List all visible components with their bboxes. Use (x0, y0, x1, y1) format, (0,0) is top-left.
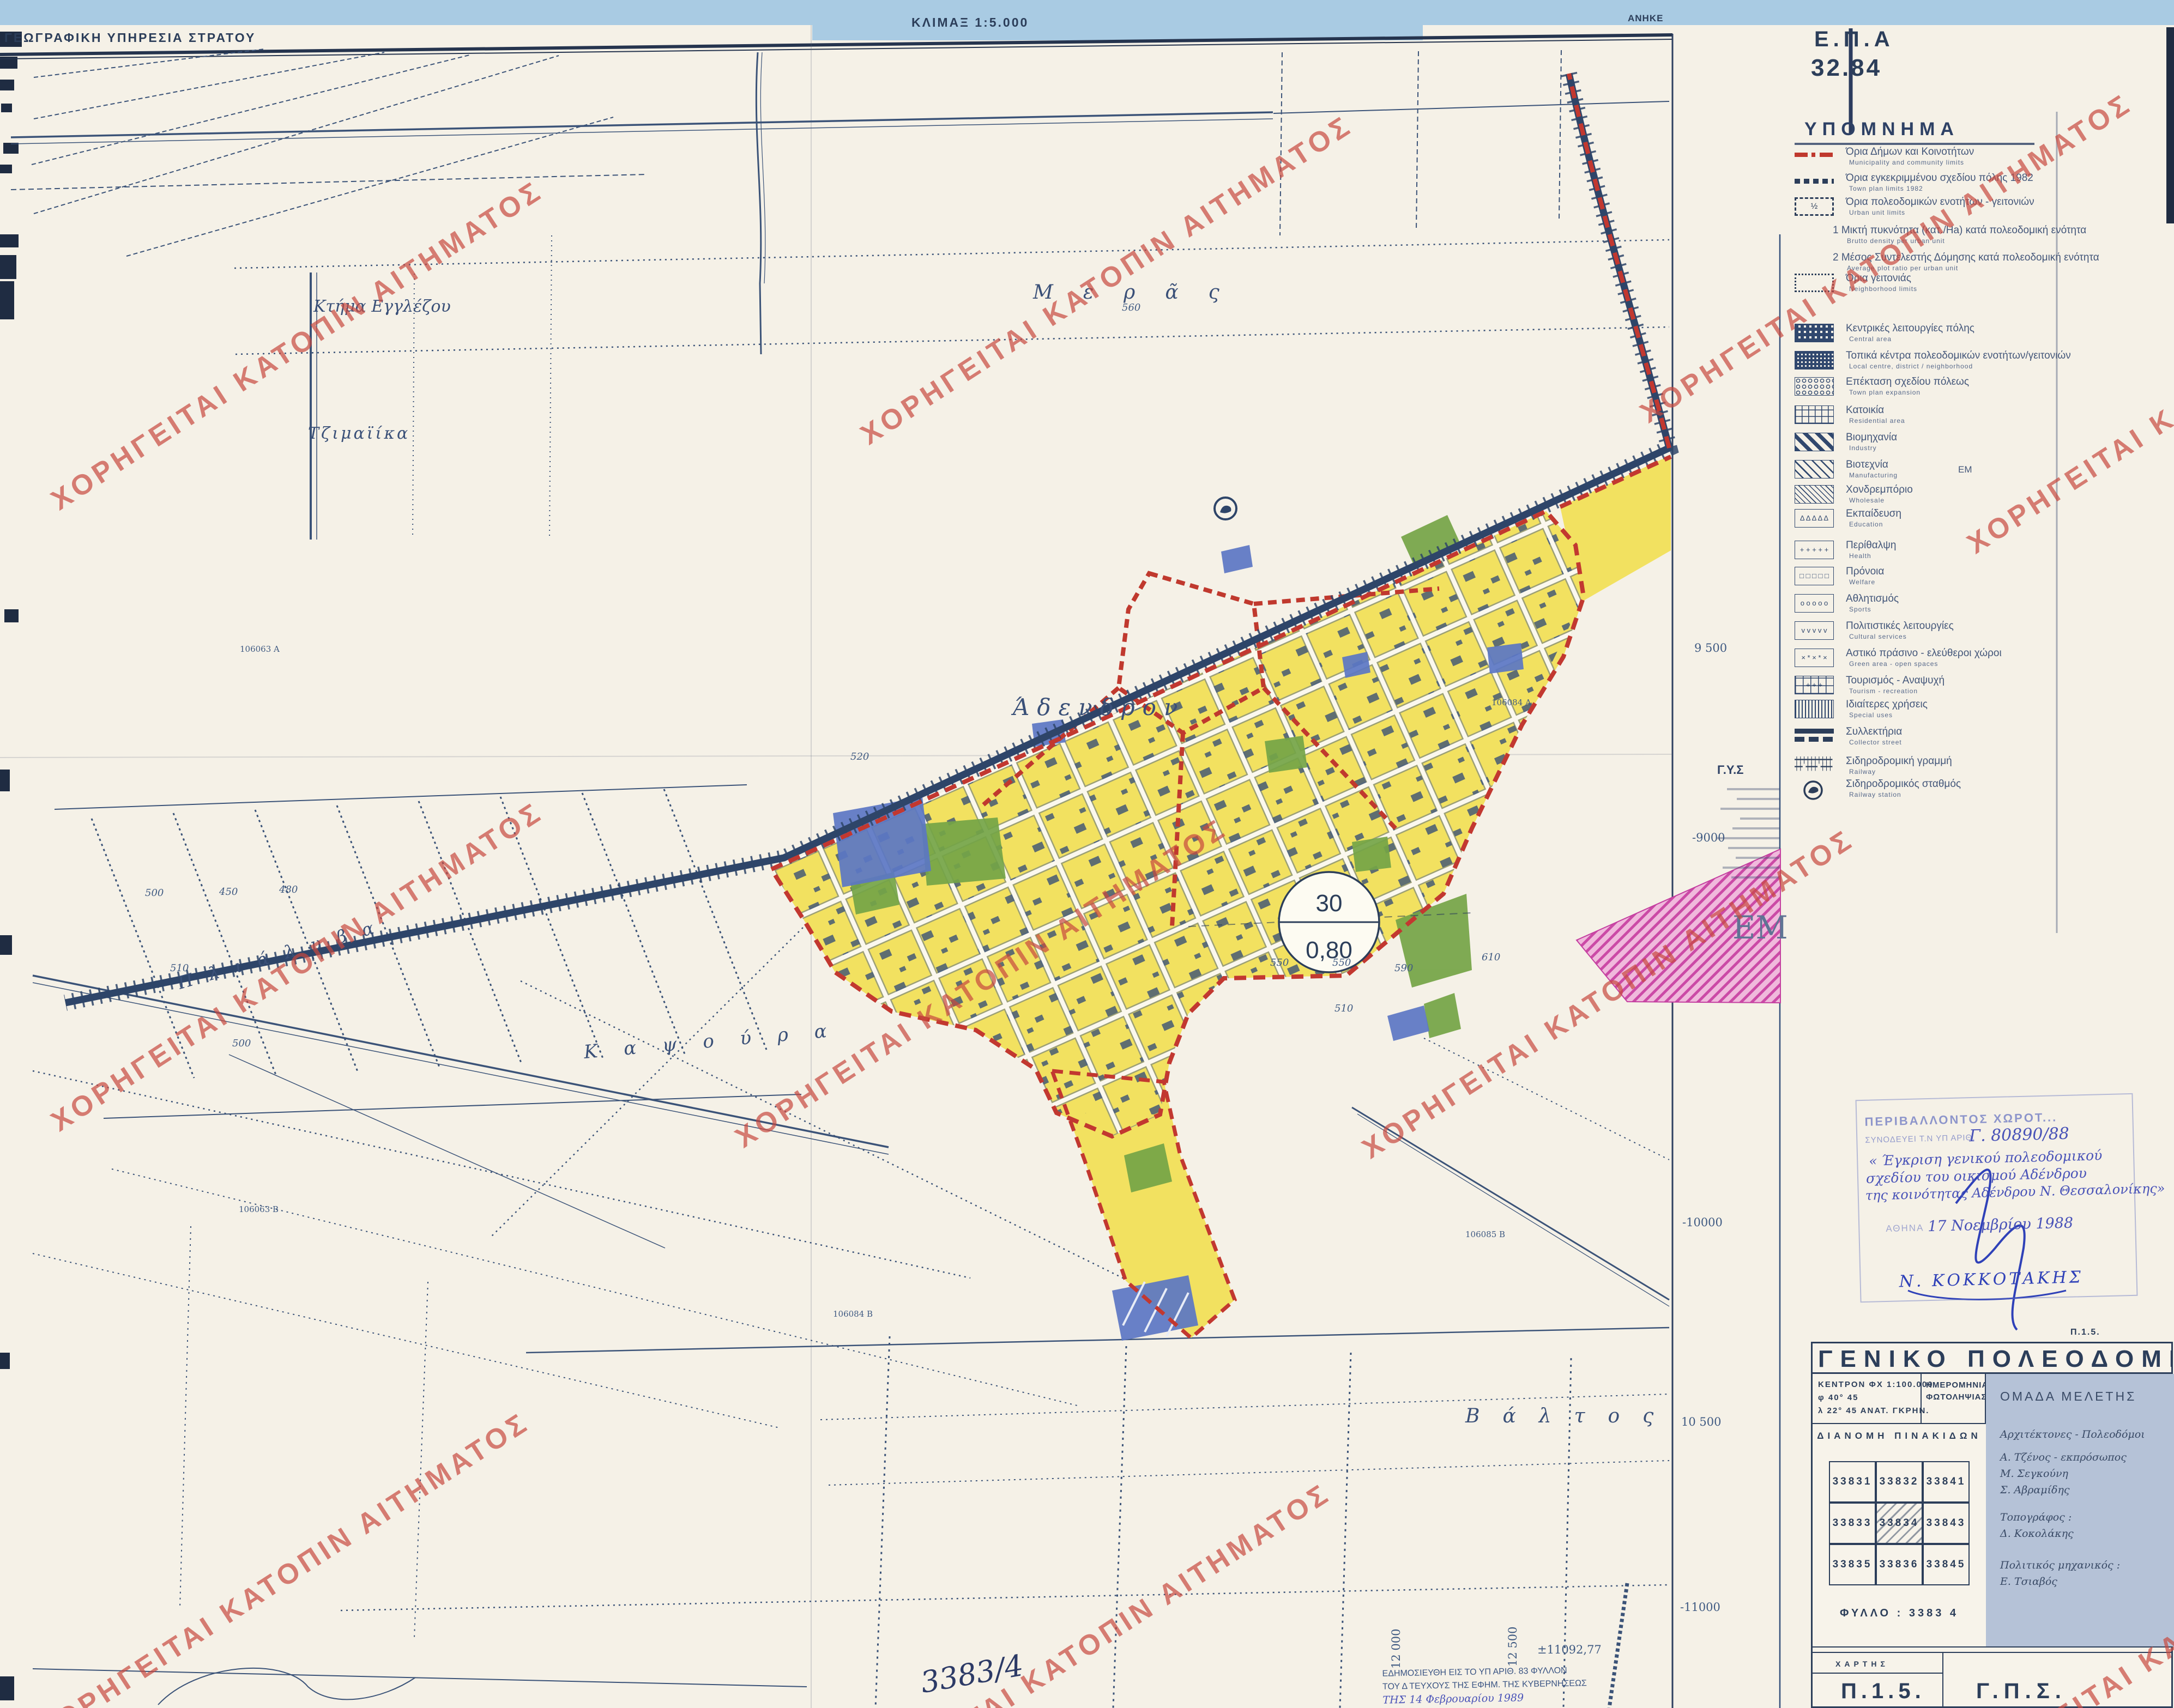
margin-number: 12 000 (1390, 1629, 1403, 1669)
legend-item-collector-street: Συλλεκτήρια Collector street (1795, 726, 2154, 751)
current-sheet-label: ΦΥΛΛΟ : 3383 4 (1813, 1607, 1986, 1620)
belongs-note: ΑΝΗΚΕ (1628, 13, 1663, 24)
legend-item-central-area: Κεντρικές λειτουργίες πόλης Central area (1795, 323, 2154, 348)
legend-rule (1795, 143, 2034, 145)
label-em: ΕΜ (1732, 909, 1788, 946)
legend-item-health: + + + + + Περίθαλψη Health (1795, 540, 2154, 565)
legend-item-town-plan-1982: Όρια εγκεκριμμένου σχεδίου πόλης 1982 To… (1795, 172, 2154, 197)
spot-number: 550 (1270, 957, 1289, 968)
urban-unit-swatch: ½ (1795, 197, 1834, 216)
legend-item-wholesale: Χονδρεμπόριο Wholesale (1795, 484, 2154, 509)
legend-item-cultural: v v v v v Πολιτιστικές λειτουργίες Cultu… (1795, 620, 2154, 645)
legend-item-tourism: + + + Τουρισμός - Αναψυχή Tourism - recr… (1795, 675, 2154, 700)
education-swatch: Δ Δ Δ Δ Δ (1795, 509, 1834, 528)
label-adendron: Άδενδρον (1011, 694, 1185, 720)
margin-number: 10 500 (1681, 1415, 1721, 1428)
team-title: ΟΜΑΔΑ ΜΕΛΕΤΗΣ (2000, 1389, 2136, 1404)
legend-item-green-area: × * × * × Αστικό πράσινο - ελεύθεροι χώρ… (1795, 647, 2154, 673)
label-ktima-englezou: Κτήμα Εγγλέζου (313, 297, 451, 316)
spot-number: 450 (219, 886, 238, 898)
legend-item-local-centre: Τοπικά κέντρα πολεοδομικών ενοτήτων/γειτ… (1795, 350, 2154, 375)
margin-number: ±11092,77 (1537, 1643, 1602, 1656)
legend-item-urban-unit-limits: ½ Όρια πολεοδομικών ενοτήτων - γειτονιών… (1795, 196, 2154, 221)
stamp-ref-label: ΣΥΝΟΔΕΥΕΙ Τ.Ν ΥΠ ΑΡΙΘ. (1865, 1133, 1976, 1145)
legend-item-railway: ┿┿┿┿┿┿┿┿┿┿ ┿┿ ┿┿┿ ┿┿┿ Σιδηροδρομική γραμ… (1795, 755, 2154, 780)
collector-street-swatch (1795, 727, 1834, 746)
sheet-cell: 33843 (1923, 1503, 1970, 1544)
em-note: EM (1958, 464, 1972, 475)
sheet-cell: 33845 (1923, 1544, 1970, 1585)
special-uses-swatch (1795, 700, 1834, 718)
urban-wedge (1560, 455, 1671, 602)
center-coords-cell: ΚΕΝΤΡΟΝ ΦΧ 1:100.000 φ 40° 45 λ 22° 45 Α… (1813, 1374, 1922, 1424)
industry-swatch (1795, 433, 1834, 451)
sheet-cell: 33841 (1923, 1461, 1970, 1503)
railway-station-symbol (1215, 498, 1236, 519)
sheet-cell-active: 33834 (1876, 1503, 1923, 1544)
legend-item-railway-station: Σιδηροδρομικός σταθμός Railway station (1795, 778, 2154, 803)
spot-number: 560 (1122, 302, 1140, 313)
municipality-limit-swatch (1795, 153, 1834, 157)
stamp-date: 17 Νοεμβρίου 1988 (1928, 1215, 2074, 1235)
welfare-swatch: □ □ □ □ □ (1795, 567, 1834, 585)
spot-number: 610 (1482, 952, 1500, 963)
geo-point-label: 106063 A (240, 644, 280, 654)
manufacturing-swatch (1795, 460, 1834, 479)
spot-number: 480 (279, 884, 298, 895)
central-area-swatch (1795, 324, 1834, 342)
label-tzimaiika: Τζιμαϊίκα (308, 424, 410, 443)
green-area-swatch: × * × * × (1795, 649, 1834, 667)
sheet-index-title: ΔΙΑΝΟΜΗ ΠΙΝΑΚΙΔΩΝ (1813, 1431, 1986, 1441)
legend-item-town-plan-expansion: Επέκταση σχεδίου πόλεως Town plan expans… (1795, 376, 2154, 401)
density-value: 30 (1316, 890, 1343, 917)
stamp-place: ΑΘΗΝΑ (1886, 1222, 1924, 1234)
legend-item-industry: Βιομηχανία Industry (1795, 432, 2154, 457)
expansion-swatch (1795, 377, 1834, 396)
geo-point-label: 106084 B (833, 1309, 873, 1319)
spot-number: 550 (1332, 957, 1351, 968)
spot-number: 510 (170, 962, 189, 974)
spot-number: 520 (850, 751, 869, 762)
legend-title: ΥΠΟΜΝΗΜΑ (1804, 119, 1959, 140)
spot-number: 590 (1394, 962, 1413, 974)
spot-number: 510 (1334, 1003, 1353, 1014)
legend-item-residential: Κατοικία Residential area (1795, 404, 2154, 429)
railway-station-icon (1795, 779, 1834, 798)
spot-number: 500 (145, 887, 164, 899)
legend-item-welfare: □ □ □ □ □ Πρόνοια Welfare (1795, 566, 2154, 591)
margin-number: -10000 (1682, 1216, 1723, 1229)
wholesale-swatch (1795, 485, 1834, 504)
sheet-cell: 33835 (1829, 1544, 1876, 1585)
study-team-panel: ΟΜΑΔΑ ΜΕΛΕΤΗΣ Αρχιτέκτονες - Πολεοδόμοι … (1986, 1374, 2174, 1646)
epa-code: Ε.Π.Α (1814, 27, 1894, 52)
legend-item-density: 1 Μικτή πυκνότητα (κατ./Ha) κατά πολεοδο… (1795, 225, 2154, 250)
margin-number: -11000 (1680, 1601, 1720, 1614)
agency-title: ΓΕΩΓΡΑΦΙΚΗ ΥΠΗΡΕΣΙΑ ΣΤΡΑΤΟΥ (4, 31, 256, 45)
publication-note: ΕΔΗΜΟΣΙΕΥΘΗ ΕΙΣ ΤΟ ΥΠ ΑΡΙΘ. 83 ΦΥΛΛΟΝ ΤΟ… (1382, 1663, 1617, 1706)
margin-number: 9 500 (1694, 641, 1727, 655)
neighborhood-limit-swatch (1795, 274, 1834, 292)
label-kapsoura: Καψούρα (582, 1018, 854, 1063)
margin-number: 12 500 (1506, 1627, 1519, 1667)
plan-title: ΓΕΝΙΚΟ ΠΟΛΕΟΔΟΜΙΚΟ ΣΧΕΔΙΟ (1813, 1343, 2171, 1374)
railway-swatch: ┿┿┿┿┿┿┿┿┿┿ ┿┿ ┿┿┿ ┿┿┿ (1795, 756, 1834, 775)
legend-item-special-uses: Ιδιαίτερες χρήσεις Special uses (1795, 699, 2154, 724)
sheet-cell: 33836 (1876, 1544, 1923, 1585)
approval-stamp: ΠΕΡΙΒΑΛΛΟΝΤΟΣ ΧΩΡΟΤ... ΣΥΝΟΔΕΥΕΙ Τ.Ν ΥΠ … (1856, 1093, 2138, 1303)
cultural-swatch: v v v v v (1795, 621, 1834, 640)
title-block: ΓΕΝΙΚΟ ΠΟΛΕΟΔΟΜΙΚΟ ΣΧΕΔΙΟ ΚΕΝΤΡΟΝ ΦΧ 1:1… (1811, 1342, 2173, 1708)
photo-date-cell: ΗΜΕΡΟΜΗΝΙΑ ΦΩΤΟΛΗΨΙΑΣ (1922, 1374, 1986, 1424)
gys-title: Γ.Υ.Σ (1717, 763, 1744, 777)
map-scale: ΚΛΙΜΑΞ 1:5.000 (911, 15, 1029, 30)
geo-point-label: 106063 B (239, 1204, 279, 1214)
sheet-ref-small: Π.1.5. (2070, 1328, 2100, 1337)
tourism-swatch: + + + (1795, 676, 1834, 694)
legend-item-municipality-limits: Όρια Δήμων και Κοινοτήτων Municipality a… (1795, 146, 2154, 171)
residential-swatch (1795, 405, 1834, 424)
label-meras: Μερᾶς (1032, 281, 1249, 304)
plan-code: Γ.Π.Σ. (1976, 1679, 2067, 1704)
geo-point-label: 106084 A (1491, 698, 1531, 707)
village-streets (675, 348, 1724, 1250)
sheet-cell: 33831 (1829, 1461, 1876, 1503)
geo-point-label: 106085 B (1465, 1229, 1505, 1239)
legend-item-manufacturing: Βιοτεχνία Manufacturing EM (1795, 459, 2154, 484)
health-swatch: + + + + + (1795, 541, 1834, 559)
spot-number: 500 (232, 1038, 251, 1049)
sports-swatch: o o o o o (1795, 594, 1834, 613)
scanned-map-sheet: 30 0,80 Κτήμα Εγγλέζου Τζιμαϊίκα Μερᾶς Ά… (0, 0, 2174, 1708)
stamp-signature-name: Ν. ΚΟΚΚΟΤΑΚΗΣ (1899, 1268, 2084, 1291)
label-plialyva: Πλιάλυβα (175, 913, 392, 994)
sheet-cell: 33832 (1876, 1461, 1923, 1503)
legend-item-sports: o o o o o Αθλητισμός Sports (1795, 593, 2154, 618)
chart-label: ΧΑΡΤΗΣ (1835, 1659, 1889, 1668)
sheet-index-grid: 33831 33832 33841 33833 33834 33843 3383… (1829, 1461, 1970, 1585)
local-centre-swatch (1795, 351, 1834, 370)
epa-number: 32.84 (1811, 54, 1882, 82)
town-plan-limit-swatch (1795, 179, 1834, 184)
chart-code: Π.1.5. (1841, 1679, 1925, 1704)
legend-item-education: Δ Δ Δ Δ Δ Εκπαίδευση Education (1795, 508, 2154, 533)
label-valtos: Βάλτος (1465, 1405, 1676, 1427)
stamp-number: Γ. 80890/88 (1969, 1124, 2069, 1146)
sheet-cell: 33833 (1829, 1503, 1876, 1544)
legend-item-neighborhood-limits: Όρια γειτονιάς Neighborhood limits (1795, 272, 2154, 298)
